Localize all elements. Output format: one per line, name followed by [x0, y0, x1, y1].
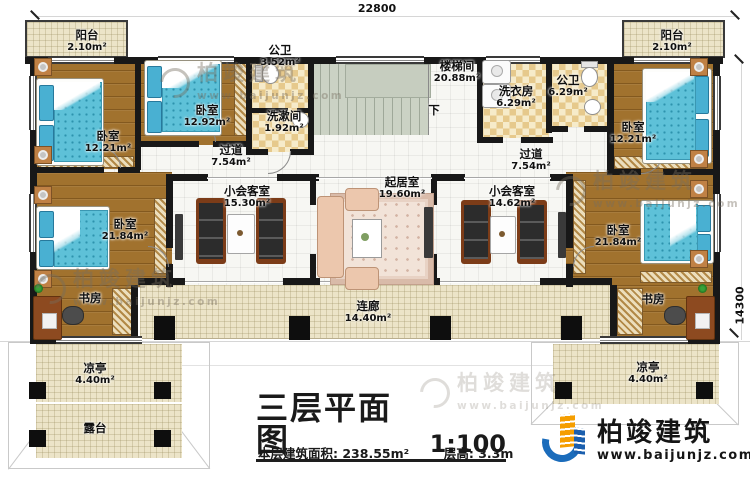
wall [431, 174, 465, 181]
bed-cushion [147, 66, 162, 98]
wall [137, 141, 199, 147]
wall [168, 174, 208, 181]
brand-website: www.baijunjz.com [597, 448, 750, 463]
bed-cushion [694, 76, 709, 114]
bed-cushion [39, 240, 54, 267]
plant [698, 284, 707, 293]
window [336, 56, 424, 64]
bed-cushion [39, 85, 54, 121]
bench-hatch [640, 271, 712, 283]
room-label-corridor: 连廊14.40m² [345, 300, 391, 324]
bed-sheet [646, 72, 694, 102]
wall [521, 137, 553, 143]
column [154, 430, 171, 447]
wardrobe-hatch [617, 288, 643, 335]
nightstand [690, 150, 708, 168]
wall [607, 169, 641, 175]
bed-cushion [147, 101, 162, 133]
bed-cushion [39, 211, 54, 238]
room-label-hallway-right: 过道7.54m² [511, 148, 550, 172]
floor-height-value: 3.3m [478, 446, 513, 461]
logo-building-blue-icon [574, 427, 585, 454]
stair-landing [345, 64, 431, 98]
dimension-tick [730, 10, 740, 20]
wall [546, 126, 568, 132]
room-label-meeting-left: 小会客室15.30m² [224, 185, 270, 209]
tea-table [227, 214, 255, 254]
wall [30, 167, 104, 173]
washing-machine [482, 60, 511, 84]
wall [540, 278, 612, 285]
nightstand [690, 58, 708, 76]
armchair [345, 267, 379, 290]
dimension-tick [30, 10, 40, 20]
room-label-balcony-tr: 阳台2.10m² [652, 29, 691, 53]
room-label-washroom: 洗漱间1.92m² [264, 110, 303, 134]
door-opening [207, 177, 277, 179]
room-label-terrace: 露台 [84, 422, 107, 435]
floor-area-label: 本层建筑面积: [258, 446, 338, 461]
bed [36, 206, 110, 270]
corridor-edge [140, 338, 612, 339]
bed-sheet [54, 210, 80, 265]
window [713, 194, 721, 252]
room-label-study-r: 书房 [642, 293, 665, 306]
column [555, 382, 572, 399]
nightstand [34, 186, 52, 204]
room-label-laundry: 洗衣房6.29m² [496, 85, 535, 109]
dimension-right-label: 14300 [734, 274, 747, 338]
column [29, 382, 46, 399]
wall [166, 174, 173, 248]
window [48, 56, 114, 64]
nightstand [690, 250, 708, 268]
wall [610, 285, 617, 339]
ground-line [182, 365, 554, 366]
plant [34, 284, 43, 293]
sofa-bench [517, 200, 547, 264]
door-opening [185, 281, 283, 283]
room-label-bedroom-r: 卧室21.84m² [595, 224, 641, 248]
column [154, 316, 175, 340]
wall [131, 285, 138, 339]
door-opening [464, 177, 551, 179]
room-label-stairwell: 楼梯间20.88m² [434, 60, 480, 84]
bed-sheet [54, 82, 100, 110]
window [713, 76, 721, 130]
dimension-tick [734, 54, 744, 64]
window [56, 336, 142, 344]
wall [477, 137, 503, 143]
window [600, 336, 688, 344]
bed-sheet [162, 64, 218, 88]
brand-company-name: 柏竣建筑 [597, 419, 750, 448]
floor-height-label: 层高: [444, 446, 474, 461]
nightstand [34, 146, 52, 164]
wall [566, 174, 573, 248]
room-label-hallway-left: 过道7.54m² [211, 144, 250, 168]
room-label-living: 起居室19.60m² [379, 176, 425, 200]
sofa-bench [461, 200, 491, 264]
wall [246, 57, 252, 154]
column [696, 382, 713, 399]
sink [584, 99, 601, 115]
stair-rail [428, 57, 429, 135]
room-label-balcony-tl: 阳台2.10m² [67, 29, 106, 53]
tv [424, 207, 433, 258]
room-label-pavilion-l: 凉亭4.40m² [75, 362, 114, 386]
wall [663, 169, 720, 175]
room-label-bath-right: 公卫6.29m² [548, 74, 587, 98]
armchair [345, 188, 379, 211]
column [430, 316, 451, 340]
room-label-pavilion-r: 凉亭4.40m² [628, 361, 667, 385]
room-label-bedroom-tr: 卧室12.21m² [610, 121, 656, 145]
room-label-bedroom-tl: 卧室12.21m² [85, 130, 131, 154]
wall [310, 181, 316, 205]
chair [664, 306, 686, 325]
dimension-line-top [35, 16, 735, 17]
sofa [317, 196, 344, 278]
door-opening [440, 281, 540, 283]
column [154, 382, 171, 399]
brand-logo: 柏竣建筑 www.baijunjz.com [542, 413, 750, 469]
nightstand [34, 58, 52, 76]
wall [138, 278, 185, 285]
dimension-top-label: 22800 [350, 2, 404, 15]
floor-area-value: 238.55m² [342, 446, 409, 461]
room-label-meeting-right: 小会客室14.62m² [489, 185, 535, 209]
wall [607, 57, 614, 175]
sofa-bench [196, 198, 226, 264]
column [29, 430, 46, 447]
column [561, 316, 582, 340]
coffee-table [352, 219, 382, 258]
tv [175, 214, 183, 260]
column [289, 316, 310, 340]
floor-plan-canvas: 22800 14300 [0, 0, 750, 486]
tv [558, 212, 566, 258]
logo-building-orange-icon [560, 413, 575, 448]
stair-down-label: 下 [428, 104, 440, 117]
chair [62, 306, 84, 325]
desk [33, 296, 62, 340]
wall [283, 278, 320, 285]
drawing-subtitle: 本层建筑面积: 238.55m² 层高: 3.3m [258, 443, 513, 462]
wall [308, 57, 314, 155]
room-label-bedroom-l: 卧室21.84m² [102, 218, 148, 242]
room-label-bath-small: 公卫3.52m² [260, 44, 299, 68]
nightstand [690, 180, 708, 198]
bed-cushion [696, 205, 711, 232]
room-label-bedroom-tm: 卧室12.92m² [184, 104, 230, 128]
wall [135, 57, 141, 170]
wall [277, 174, 319, 181]
room-label-study-l: 书房 [79, 292, 102, 305]
brand-logo-icon [542, 413, 590, 469]
desk [686, 296, 715, 340]
tea-table [490, 216, 516, 254]
